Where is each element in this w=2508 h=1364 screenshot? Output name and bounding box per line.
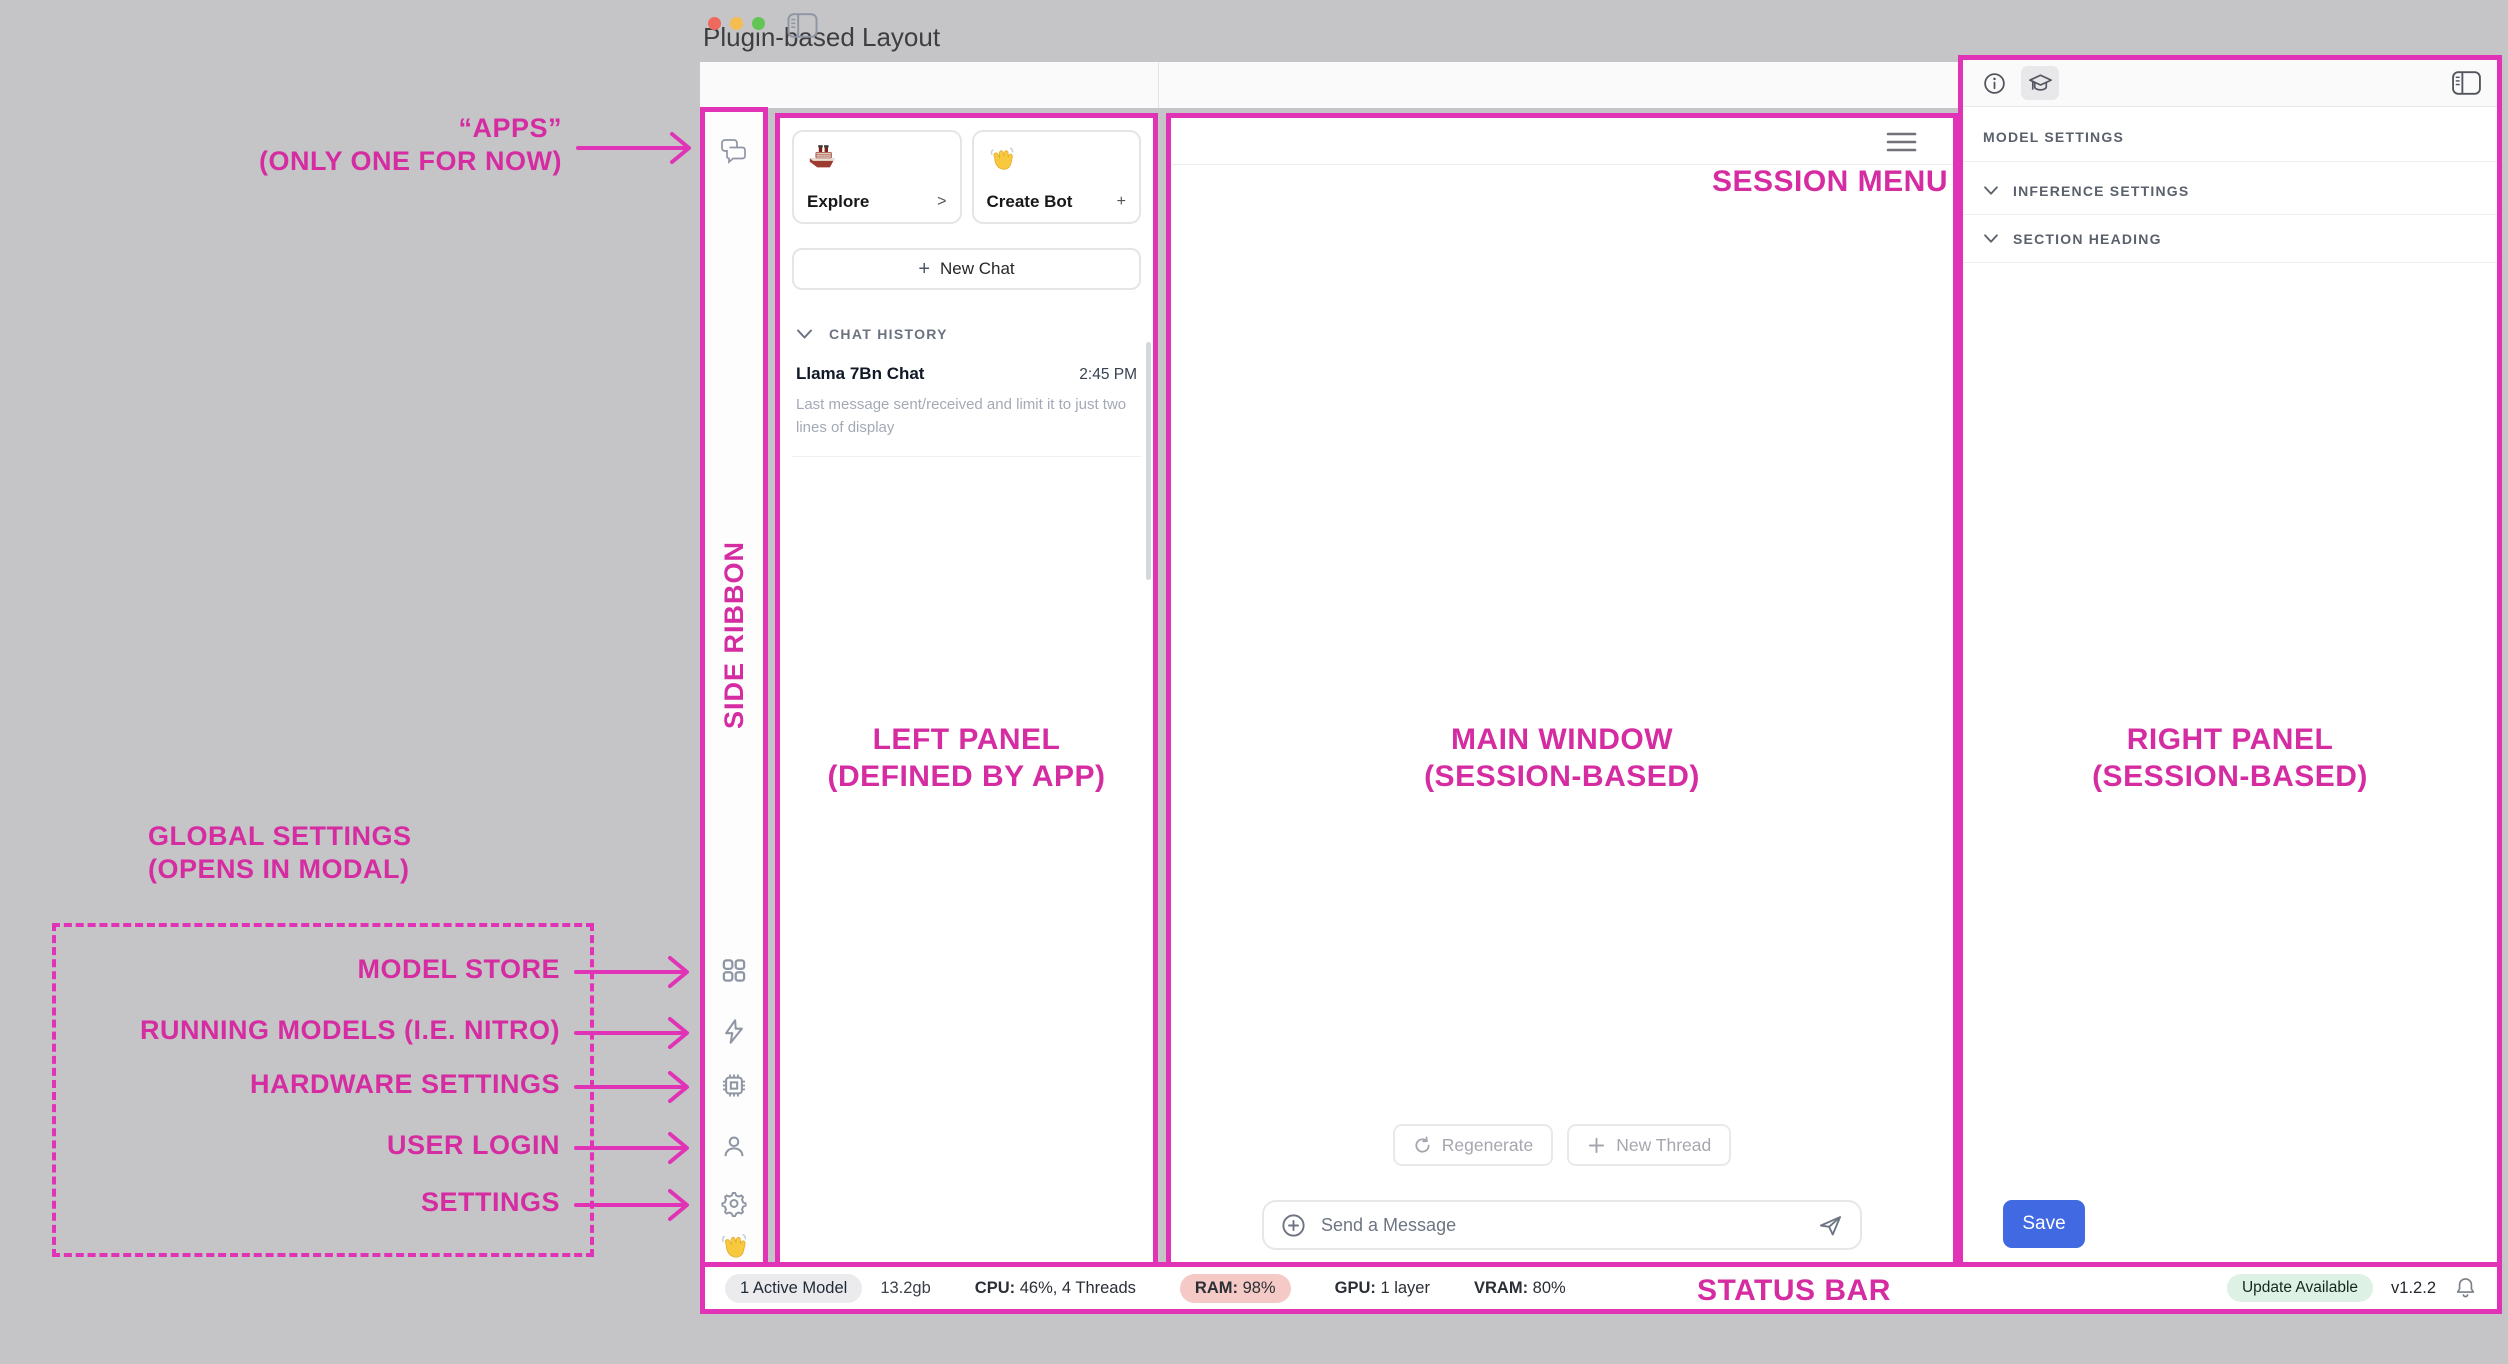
running-models-arrow bbox=[574, 1013, 694, 1053]
settings-arrow bbox=[574, 1185, 694, 1225]
create-bot-plus: + bbox=[1117, 193, 1126, 211]
vram-label: VRAM: bbox=[1474, 1279, 1528, 1297]
inference-settings-section[interactable]: INFERENCE SETTINGS bbox=[1963, 167, 2497, 215]
apps-arrow bbox=[576, 128, 696, 168]
main-window: MAIN WINDOW (SESSION-BASED) Regenerate N… bbox=[1166, 113, 1958, 1267]
sidebar-toggle-icon[interactable] bbox=[786, 12, 819, 39]
regenerate-button[interactable]: Regenerate bbox=[1393, 1124, 1553, 1166]
model-store-annotation: MODEL STORE bbox=[357, 953, 560, 986]
user-login-icon[interactable] bbox=[721, 1133, 748, 1160]
chat-time: 2:45 PM bbox=[1079, 366, 1137, 384]
notifications-bell-icon[interactable] bbox=[2454, 1276, 2477, 1300]
right-panel-toolbar bbox=[1963, 60, 2497, 107]
main-window-annotation: MAIN WINDOW (SESSION-BASED) bbox=[1171, 722, 1953, 795]
new-chat-label: New Chat bbox=[940, 259, 1015, 279]
plus-icon: + bbox=[918, 258, 930, 281]
window-titlebar bbox=[700, 62, 1958, 108]
explore-card[interactable]: Explore > bbox=[792, 130, 962, 224]
chat-list-item[interactable]: Llama 7Bn Chat 2:45 PM Last message sent… bbox=[792, 364, 1141, 457]
gpu-label: GPU: bbox=[1335, 1279, 1376, 1297]
create-bot-card[interactable]: Create Bot + bbox=[972, 130, 1142, 224]
chat-title: Llama 7Bn Chat bbox=[796, 364, 924, 384]
side-ribbon: SIDE RIBBON bbox=[700, 107, 768, 1267]
section-heading-label: SECTION HEADING bbox=[2013, 231, 2162, 247]
titlebar-divider bbox=[1158, 62, 1159, 108]
thread-actions: Regenerate New Thread bbox=[1171, 1124, 1953, 1166]
section-heading-section[interactable]: SECTION HEADING bbox=[1963, 215, 2497, 263]
hardware-settings-icon[interactable] bbox=[721, 1072, 748, 1099]
save-button[interactable]: Save bbox=[2003, 1200, 2085, 1248]
running-models-annotation: RUNNING MODELS (I.E. NITRO) bbox=[140, 1014, 560, 1047]
ram-badge: RAM: 98% bbox=[1180, 1274, 1291, 1303]
new-thread-button[interactable]: New Thread bbox=[1567, 1124, 1731, 1166]
version-label: v1.2.2 bbox=[2391, 1279, 2436, 1298]
explore-chevron: > bbox=[937, 193, 946, 211]
memory-size: 13.2gb bbox=[880, 1279, 930, 1298]
global-settings-annotation: GLOBAL SETTINGS (OPENS IN MODAL) bbox=[148, 820, 412, 886]
user-login-annotation: USER LOGIN bbox=[387, 1129, 560, 1162]
chat-preview: Last message sent/received and limit it … bbox=[796, 393, 1136, 440]
session-menu-icon[interactable] bbox=[1886, 131, 1917, 153]
chat-app-icon[interactable] bbox=[719, 136, 749, 166]
regenerate-label: Regenerate bbox=[1442, 1135, 1533, 1156]
cpu-value: 46%, 4 Threads bbox=[1020, 1279, 1136, 1297]
wave-hand-emoji-icon bbox=[987, 142, 1127, 172]
new-thread-label: New Thread bbox=[1616, 1135, 1711, 1156]
explore-label: Explore bbox=[807, 192, 869, 212]
wave-hand-icon[interactable] bbox=[718, 1228, 750, 1260]
close-window-button[interactable] bbox=[708, 17, 721, 30]
apps-annotation: “APPS” (ONLY ONE FOR NOW) bbox=[259, 112, 562, 178]
model-settings-header: MODEL SETTINGS bbox=[1963, 107, 2497, 162]
panel-toggle-icon[interactable] bbox=[2447, 66, 2485, 100]
right-panel: MODEL SETTINGS INFERENCE SETTINGS SECTIO… bbox=[1958, 55, 2502, 1267]
model-store-arrow bbox=[574, 952, 694, 992]
gpu-value: 1 layer bbox=[1380, 1279, 1430, 1297]
left-panel-scrollbar[interactable] bbox=[1146, 342, 1151, 580]
message-placeholder: Send a Message bbox=[1321, 1215, 1803, 1236]
update-available-badge[interactable]: Update Available bbox=[2227, 1274, 2373, 1302]
send-message-icon[interactable] bbox=[1817, 1212, 1844, 1239]
inference-settings-label: INFERENCE SETTINGS bbox=[2013, 183, 2189, 199]
zoom-window-button[interactable] bbox=[752, 17, 765, 30]
attach-plus-icon[interactable] bbox=[1280, 1212, 1307, 1239]
chevron-down-icon bbox=[1983, 185, 1999, 196]
cpu-label: CPU: bbox=[975, 1279, 1015, 1297]
status-bar: 1 Active Model 13.2gb CPU: 46%, 4 Thread… bbox=[700, 1262, 2502, 1314]
right-panel-annotation: RIGHT PANEL (SESSION-BASED) bbox=[1963, 722, 2497, 795]
create-bot-label: Create Bot bbox=[987, 192, 1073, 212]
user-login-arrow bbox=[574, 1128, 694, 1168]
model-settings-tab-icon[interactable] bbox=[2021, 66, 2059, 100]
settings-annotation: SETTINGS bbox=[421, 1186, 560, 1219]
hardware-settings-annotation: HARDWARE SETTINGS bbox=[250, 1068, 560, 1101]
ship-emoji-icon bbox=[807, 142, 947, 172]
minimize-window-button[interactable] bbox=[730, 17, 743, 30]
new-chat-button[interactable]: + New Chat bbox=[792, 248, 1141, 290]
chevron-down-icon bbox=[796, 328, 813, 340]
left-panel: Explore > Create Bot + + New Chat bbox=[775, 113, 1158, 1267]
main-window-topbar bbox=[1171, 118, 1953, 165]
status-bar-annotation: STATUS BAR bbox=[1697, 1273, 1891, 1310]
chat-history-header[interactable]: CHAT HISTORY bbox=[792, 326, 1141, 342]
active-model-badge[interactable]: 1 Active Model bbox=[725, 1274, 862, 1303]
app-cards: Explore > Create Bot + bbox=[792, 130, 1141, 224]
side-ribbon-annotation: SIDE RIBBON bbox=[705, 505, 763, 765]
vram-value: 80% bbox=[1533, 1279, 1566, 1297]
left-panel-annotation: LEFT PANEL (DEFINED BY APP) bbox=[780, 722, 1153, 795]
info-tab-icon[interactable] bbox=[1975, 66, 2013, 100]
message-input[interactable]: Send a Message bbox=[1262, 1200, 1862, 1250]
session-menu-annotation: SESSION MENU bbox=[1712, 164, 1948, 201]
running-models-icon[interactable] bbox=[721, 1018, 748, 1045]
model-store-icon[interactable] bbox=[721, 957, 748, 984]
hardware-settings-arrow bbox=[574, 1067, 694, 1107]
chevron-down-icon bbox=[1983, 233, 1999, 244]
chat-history-label: CHAT HISTORY bbox=[829, 326, 948, 342]
settings-gear-icon[interactable] bbox=[721, 1190, 748, 1217]
